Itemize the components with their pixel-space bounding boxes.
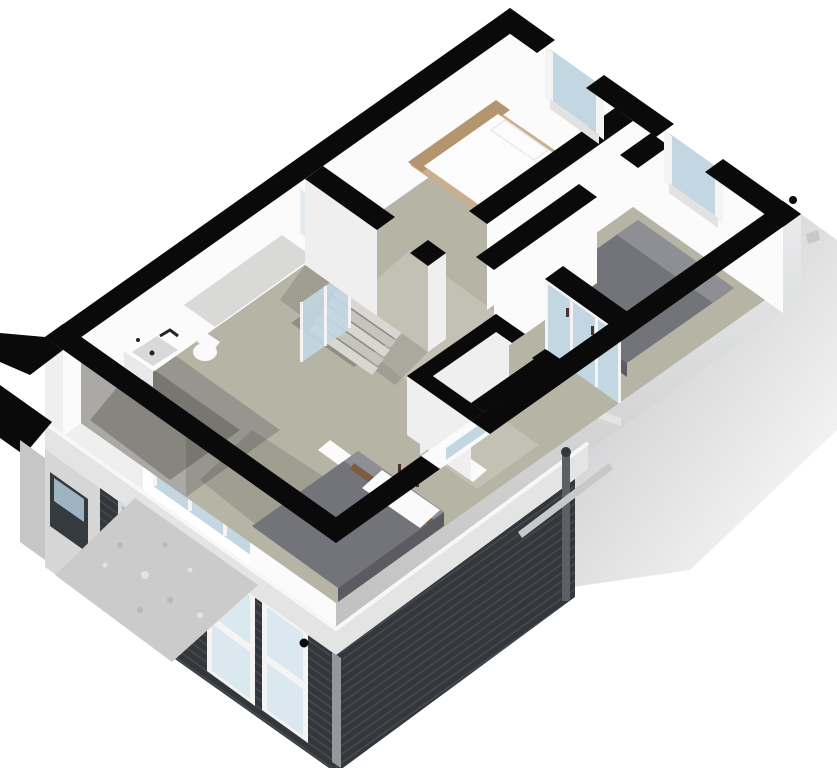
closet-handle [591,326,594,335]
faucet-handle [136,338,140,342]
driveway-speckle [163,543,168,548]
ne-window-1-jamb [545,46,553,104]
floorplan-svg [0,0,837,768]
downspout-cap [561,447,571,457]
driveway-speckle [167,597,173,603]
downspout-pipe [562,452,570,601]
driveway-speckle [137,607,143,613]
sink-drain [150,351,155,356]
lower-west-block [20,440,45,560]
glass-partition-stile [324,286,327,346]
closet-stile [545,279,548,351]
driveway-speckle [141,571,149,579]
driveway-speckle [103,563,108,568]
ne-window-2-jamb [664,130,672,188]
floorplan-render [0,0,837,768]
driveway-speckle [117,542,123,548]
driveway-speckle [197,612,203,618]
driveway-speckle [188,568,193,573]
corner-trim [332,652,341,768]
roof-vent-dot [789,196,797,204]
wall-face [428,253,446,352]
fascia-dot [300,639,309,648]
closet-handle [566,308,569,317]
glass-partition-stile [300,302,303,362]
